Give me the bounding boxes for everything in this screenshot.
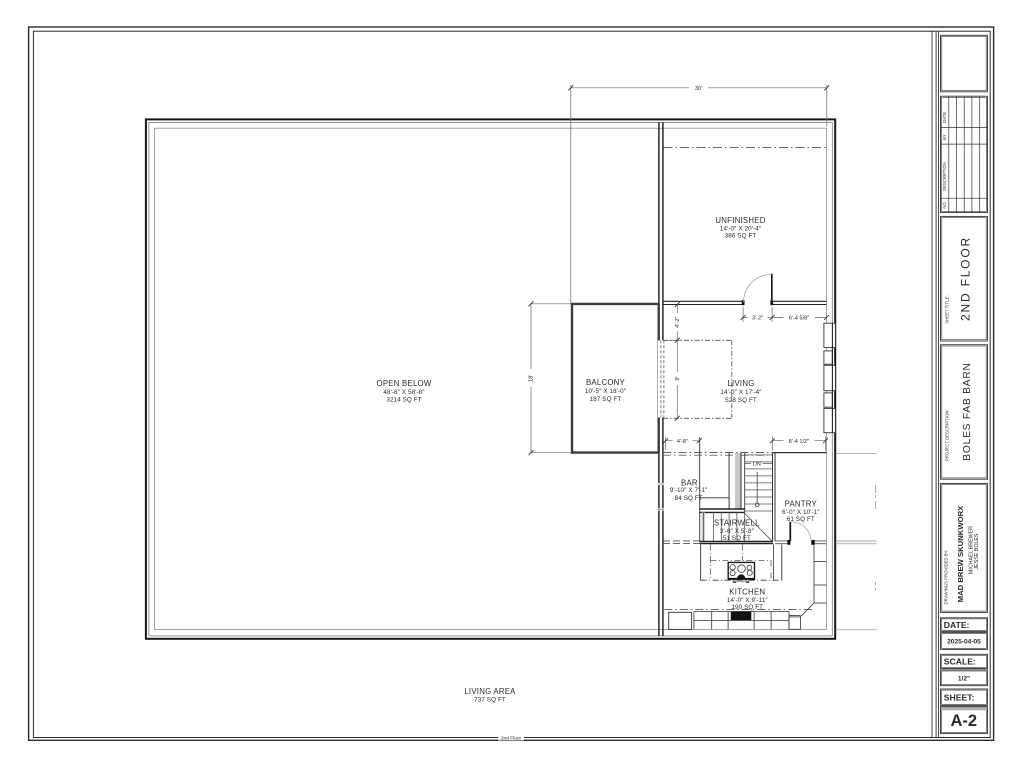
svg-text:DN: DN	[753, 462, 761, 468]
svg-text:18′: 18′	[529, 375, 535, 382]
svg-text:SCALE:: SCALE:	[944, 657, 976, 667]
svg-text:1/2": 1/2"	[958, 676, 970, 683]
svg-text:KITCHEN: KITCHEN	[729, 588, 765, 597]
svg-text:BALCONY: BALCONY	[586, 378, 626, 387]
svg-text:NO.: NO.	[942, 201, 947, 208]
svg-text:14′-0″ X 17′-4″: 14′-0″ X 17′-4″	[720, 389, 762, 396]
svg-text:190 SQ FT: 190 SQ FT	[731, 604, 763, 611]
svg-text:9′: 9′	[675, 376, 681, 380]
svg-text:MAD BREW SKUNKWORX: MAD BREW SKUNKWORX	[956, 505, 965, 602]
svg-text:PROJECT DESCRIPTION:: PROJECT DESCRIPTION:	[944, 409, 949, 461]
svg-text:SHEET:: SHEET:	[944, 692, 975, 702]
svg-text:48′-8″ X 58′-8″: 48′-8″ X 58′-8″	[383, 389, 425, 396]
svg-text:10′-5″ X 18′-0″: 10′-5″ X 18′-0″	[585, 388, 627, 395]
svg-text:61 SQ FT: 61 SQ FT	[787, 516, 815, 523]
svg-text:9′-10″ X 7′-1″: 9′-10″ X 7′-1″	[670, 487, 708, 494]
svg-text:187 SQ FT: 187 SQ FT	[590, 396, 622, 403]
svg-text:BOLES FAB BARN: BOLES FAB BARN	[962, 362, 973, 460]
svg-text:A-2: A-2	[951, 712, 978, 730]
svg-text:BY: BY	[942, 134, 947, 140]
svg-text:DATE:: DATE:	[944, 620, 970, 630]
svg-text:4′-2″: 4′-2″	[675, 317, 681, 328]
svg-text:14′-0″ X 20′-4″: 14′-0″ X 20′-4″	[720, 226, 762, 233]
svg-text:JESSE BOLES: JESSE BOLES	[974, 533, 980, 569]
svg-text:3214 SQ FT: 3214 SQ FT	[386, 396, 421, 403]
svg-text:DATE: DATE	[942, 112, 947, 123]
svg-text:14′-0″ X 9′-11″: 14′-0″ X 9′-11″	[727, 597, 768, 604]
svg-text:SHEET TITLE :: SHEET TITLE :	[944, 294, 949, 323]
svg-text:3′-2″: 3′-2″	[752, 316, 763, 322]
svg-text:386 SQ FT: 386 SQ FT	[725, 233, 757, 240]
svg-text:8′-4 1/2″: 8′-4 1/2″	[789, 439, 809, 445]
svg-text:UNFINISHED: UNFINISHED	[715, 216, 765, 225]
svg-text:737 SQ FT: 737 SQ FT	[474, 697, 506, 704]
svg-text:2025-04-05: 2025-04-05	[947, 639, 981, 646]
svg-text:84 SQ FT: 84 SQ FT	[675, 495, 703, 502]
svg-text:STAIRWELL: STAIRWELL	[714, 518, 760, 527]
svg-text:LIVING AREA: LIVING AREA	[464, 687, 516, 696]
svg-text:4′-8″: 4′-8″	[677, 439, 688, 445]
svg-text:3′-6″ X 5′-8″: 3′-6″ X 5′-8″	[720, 528, 755, 535]
svg-text:2nd Floor: 2nd Floor	[501, 736, 522, 742]
svg-text:DESCRIPTION: DESCRIPTION	[942, 162, 947, 191]
svg-text:OPEN BELOW: OPEN BELOW	[377, 379, 432, 388]
svg-text:30′: 30′	[695, 86, 702, 92]
svg-text:PANTRY: PANTRY	[785, 499, 818, 508]
svg-text:528 SQ FT: 528 SQ FT	[725, 397, 757, 404]
svg-text:BAR: BAR	[681, 478, 698, 487]
svg-text:2ND FLOOR: 2ND FLOOR	[958, 236, 972, 321]
svg-text:LIVING: LIVING	[727, 379, 754, 388]
svg-text:6′-0″ X 10′-1″: 6′-0″ X 10′-1″	[782, 509, 820, 516]
svg-text:DRAWINGS PROVIDED BY:: DRAWINGS PROVIDED BY:	[944, 550, 949, 605]
svg-text:6′-4 5/8″: 6′-4 5/8″	[789, 316, 809, 322]
